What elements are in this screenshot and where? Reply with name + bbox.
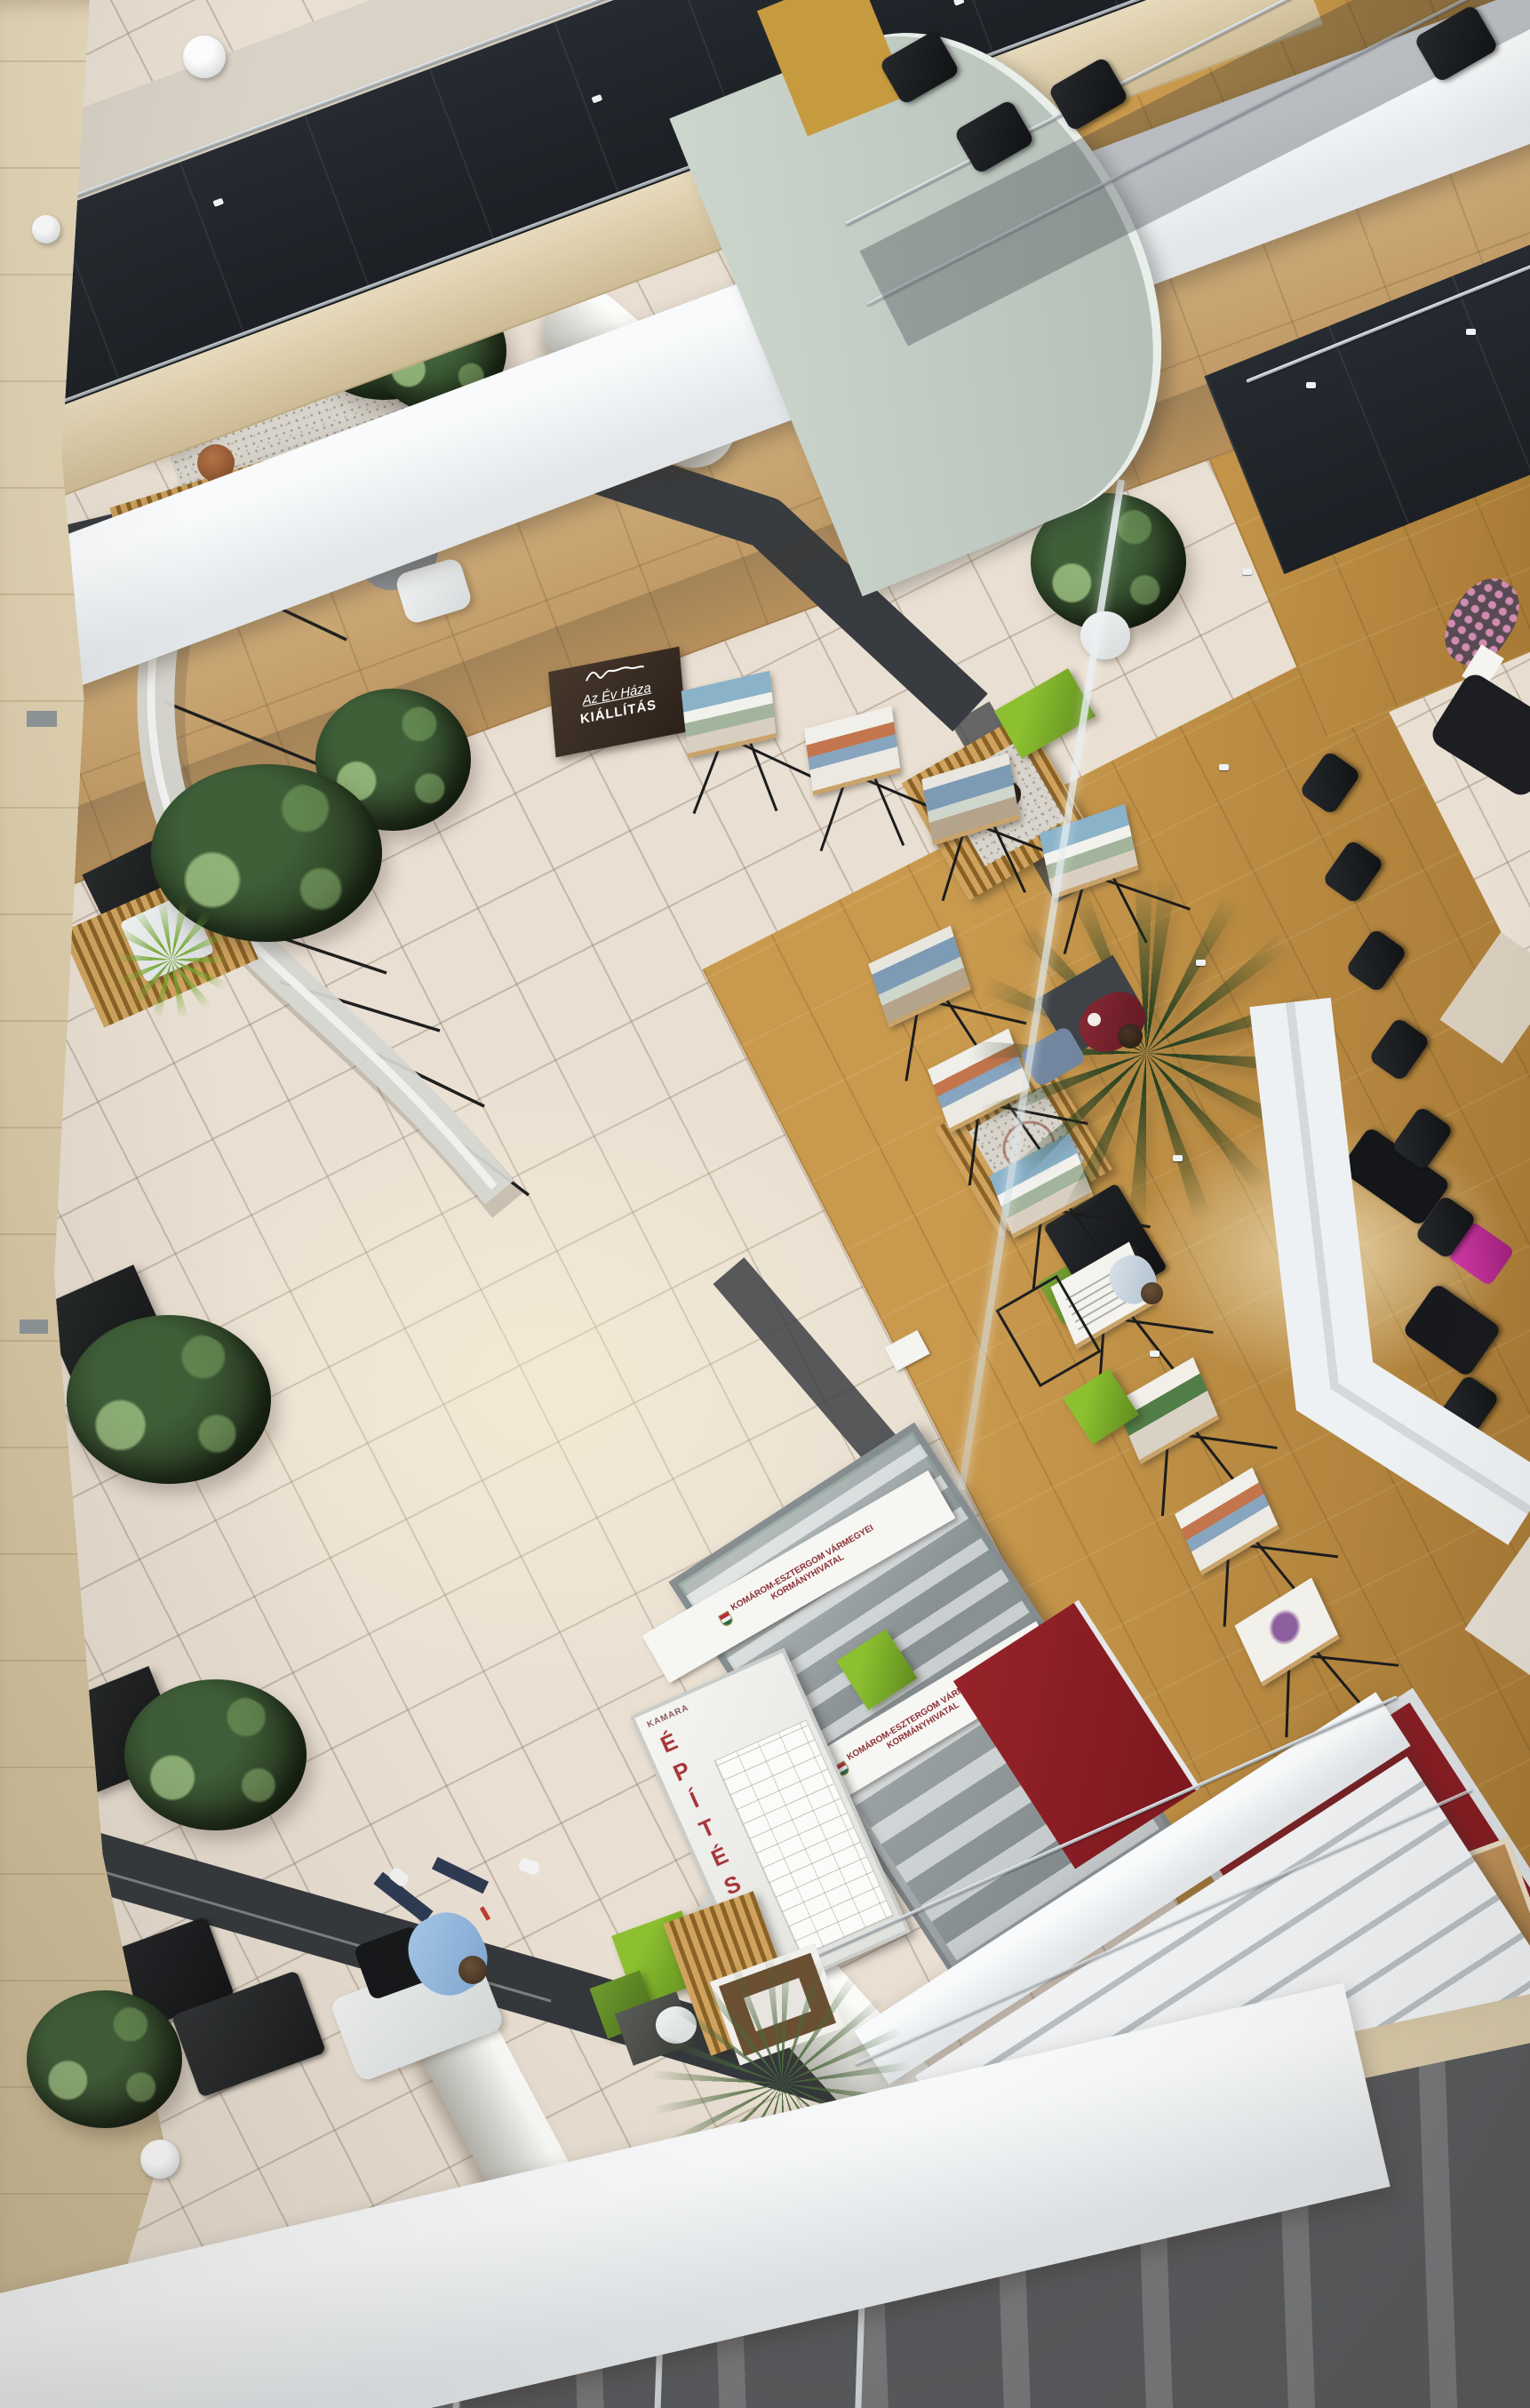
pillar-bracket [27,711,57,727]
sphere-lamp [32,215,60,243]
atrium-photo: Az Év Háza KIÁLLÍTÁS KOMÁROM-ESZTERGOM V… [0,0,1530,2408]
glass-clamp [1306,382,1316,388]
ficus-tree [27,1990,182,2128]
glass-clamp [1466,329,1476,335]
pillar-bracket [20,1320,48,1334]
sphere-lamp [140,2140,179,2179]
sphere-lamp [183,36,226,78]
